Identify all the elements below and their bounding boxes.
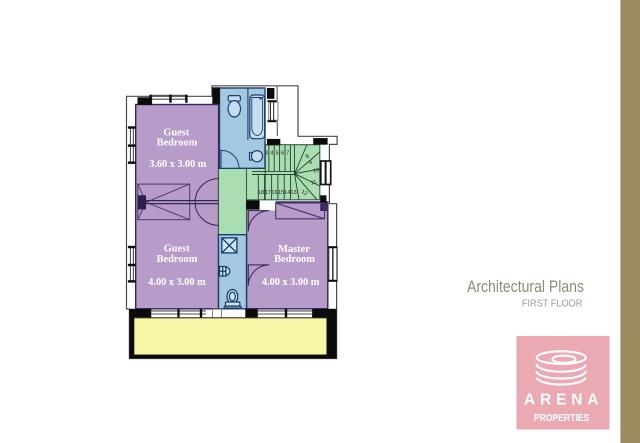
- svg-text:4.00 x 3.00 m: 4.00 x 3.00 m: [262, 277, 320, 288]
- svg-text:13: 13: [290, 190, 296, 196]
- svg-text:15: 15: [278, 190, 284, 196]
- svg-text:PROPERTIES: PROPERTIES: [534, 413, 590, 424]
- svg-text:ARENA: ARENA: [524, 392, 599, 409]
- svg-text:18: 18: [258, 190, 264, 196]
- svg-text:4.00 x 3.00 m: 4.00 x 3.00 m: [148, 277, 206, 288]
- svg-text:4: 4: [270, 151, 273, 157]
- svg-text:Bedroom: Bedroom: [157, 138, 198, 149]
- svg-text:Bedroom: Bedroom: [157, 254, 198, 265]
- svg-text:17: 17: [265, 190, 271, 196]
- svg-text:Bedroom: Bedroom: [274, 254, 315, 265]
- svg-text:6: 6: [281, 151, 284, 157]
- svg-text:7: 7: [286, 151, 289, 157]
- svg-text:3: 3: [265, 151, 268, 157]
- svg-text:16: 16: [271, 190, 277, 196]
- svg-text:11: 11: [310, 179, 317, 186]
- svg-text:3.60 x 3.00 m: 3.60 x 3.00 m: [149, 159, 207, 170]
- svg-text:Architectural Plans: Architectural Plans: [467, 277, 584, 296]
- svg-text:5: 5: [276, 151, 279, 157]
- svg-text:FIRST FLOOR: FIRST FLOOR: [522, 299, 583, 310]
